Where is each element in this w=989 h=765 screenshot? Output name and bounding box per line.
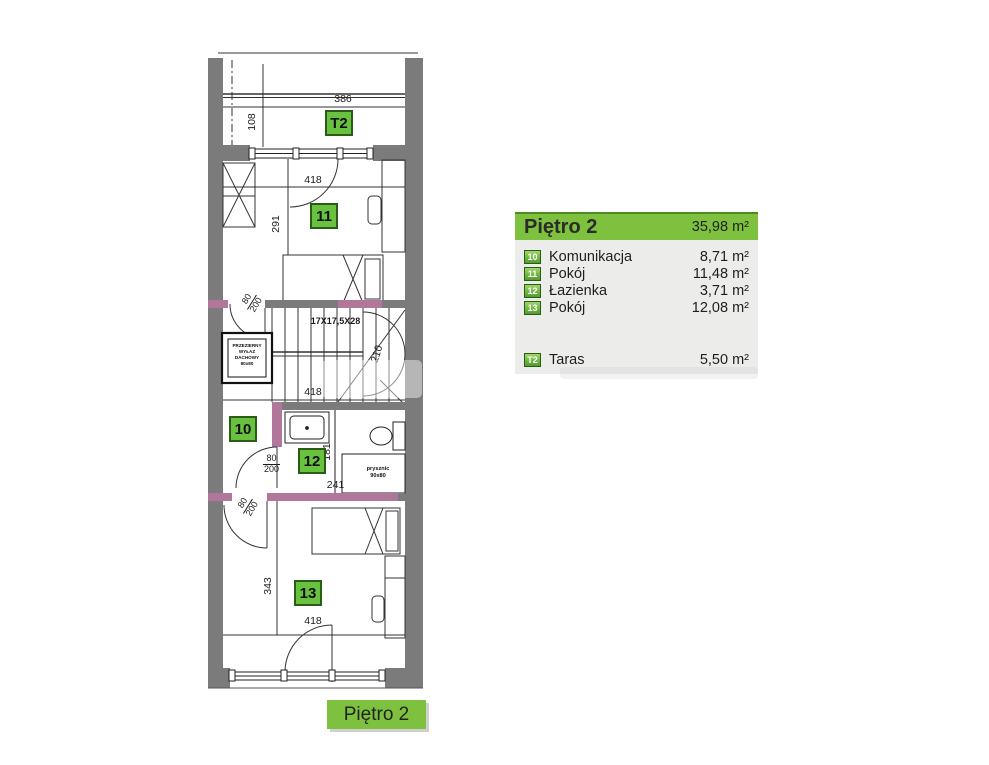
legend-room-area: 8,71 m²: [700, 249, 749, 265]
balcony-door-arc: [285, 625, 332, 672]
legend-room-area: 11,48 m²: [693, 266, 749, 282]
shower-label: prysznic 90x80: [355, 466, 401, 480]
door-width: 80: [267, 454, 277, 464]
legend-room-badge: 13: [524, 301, 541, 315]
dim-room11-width: 418: [293, 174, 333, 186]
door-size-bathroom: 80 200: [263, 454, 280, 474]
dim-room13-height: 343: [262, 573, 274, 599]
floor-name-label: Piętro 2: [327, 700, 426, 729]
legend-room-name: Pokój: [549, 266, 693, 282]
desk: [385, 556, 405, 638]
toilet-tank: [393, 422, 405, 450]
shower-label-line: 90x80: [355, 473, 401, 480]
legend-room-name: Komunikacja: [549, 249, 700, 265]
badge-room-13: 13: [294, 580, 322, 606]
badge-terrace-t2: T2: [325, 110, 353, 136]
shower-label-line: prysznic: [355, 466, 401, 473]
roof-hatch-label: PRZEZIERNY WYŁAZ DACHOWY 80x80: [228, 343, 266, 367]
legend-row-terrace: T2 Taras 5,50 m²: [524, 352, 749, 368]
legend-total-area: 35,98 m²: [692, 219, 749, 235]
legend-room-name: Pokój: [549, 300, 692, 316]
floor-plan-page: 386 108 418 291 17X17,5X28 210 418 181 2…: [0, 0, 989, 765]
legend-room-area: 5,50 m²: [700, 352, 749, 368]
badge-room-12: 12: [298, 448, 326, 474]
pillow: [365, 259, 380, 299]
door-height: 200: [263, 464, 280, 475]
legend-title: Piętro 2: [524, 216, 692, 239]
dim-room11-height: 291: [270, 211, 282, 237]
legend-row: 11 Pokój 11,48 m²: [524, 266, 749, 282]
badge-room-10: 10: [229, 416, 257, 442]
terrace-window: [223, 145, 405, 161]
stairs-formula: 17X17,5X28: [293, 316, 378, 326]
chair: [372, 596, 384, 622]
dim-bath-width: 241: [313, 479, 358, 491]
legend-row: 13 Pokój 12,08 m²: [524, 300, 749, 316]
legend-room-badge: 11: [524, 267, 541, 281]
legend-room-area: 3,71 m²: [700, 283, 749, 299]
legend-room-badge: 10: [524, 250, 541, 264]
dim-stairs-width: 418: [293, 386, 333, 398]
dim-room13-width: 418: [293, 615, 333, 627]
desk: [382, 160, 405, 252]
roof-hatch-line: 80x80: [228, 361, 266, 367]
legend-room-area: 12,08 m²: [692, 300, 749, 316]
legend-room-badge: T2: [524, 353, 541, 367]
dim-terrace-depth: 108: [246, 109, 258, 135]
legend-room-name: Taras: [549, 352, 700, 368]
badge-room-11: 11: [310, 203, 338, 229]
legend-row: 10 Komunikacja 8,71 m²: [524, 249, 749, 265]
chair: [368, 196, 381, 224]
bed: [312, 508, 400, 554]
legend-row: 12 Łazienka 3,71 m²: [524, 283, 749, 299]
toilet-bowl: [370, 427, 392, 445]
legend-header: Piętro 2 35,98 m²: [515, 212, 758, 240]
sink-drain: [306, 427, 309, 430]
wall-room11-stairs: [208, 300, 405, 308]
bed: [283, 255, 383, 303]
legend-room-name: Łazienka: [549, 283, 700, 299]
legend-room-badge: 12: [524, 284, 541, 298]
dim-terrace-width: 386: [308, 93, 378, 105]
legend-panel: Piętro 2 35,98 m² 10 Komunikacja 8,71 m²…: [515, 212, 758, 374]
floor-plan: 386 108 418 291 17X17,5X28 210 418 181 2…: [205, 50, 425, 690]
pillow: [386, 511, 398, 551]
